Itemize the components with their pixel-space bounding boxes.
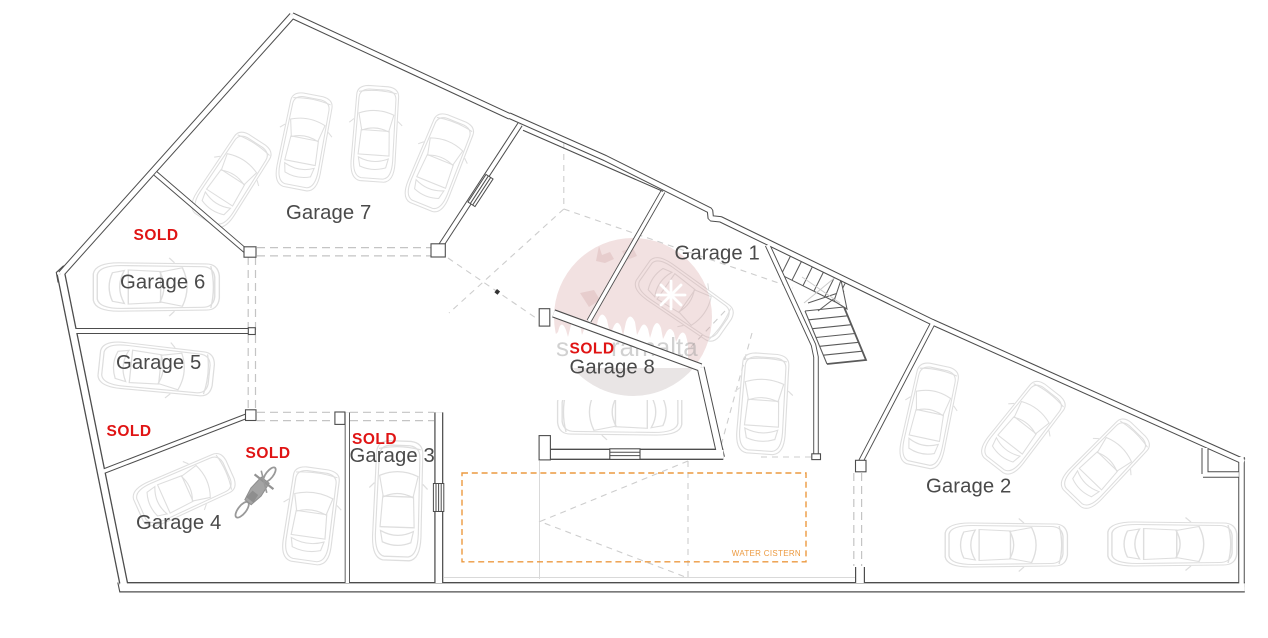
svg-text:Garage 4: Garage 4 [136,512,221,534]
svg-text:s: s [556,332,569,362]
svg-text:Garage 6: Garage 6 [120,272,205,294]
svg-text:Garage 5: Garage 5 [116,352,201,374]
svg-text:WATER CISTERN: WATER CISTERN [732,549,801,558]
svg-text:Garage 1: Garage 1 [675,243,760,265]
svg-text:SOLD: SOLD [107,423,152,440]
svg-text:Garage 8: Garage 8 [570,357,655,379]
svg-text:Garage 3: Garage 3 [350,445,435,467]
svg-text:SOLD: SOLD [570,341,615,358]
svg-text:SOLD: SOLD [246,445,291,462]
svg-text:Garage 7: Garage 7 [286,202,371,224]
svg-text:Garage 2: Garage 2 [926,476,1011,498]
svg-text:SOLD: SOLD [134,227,179,244]
